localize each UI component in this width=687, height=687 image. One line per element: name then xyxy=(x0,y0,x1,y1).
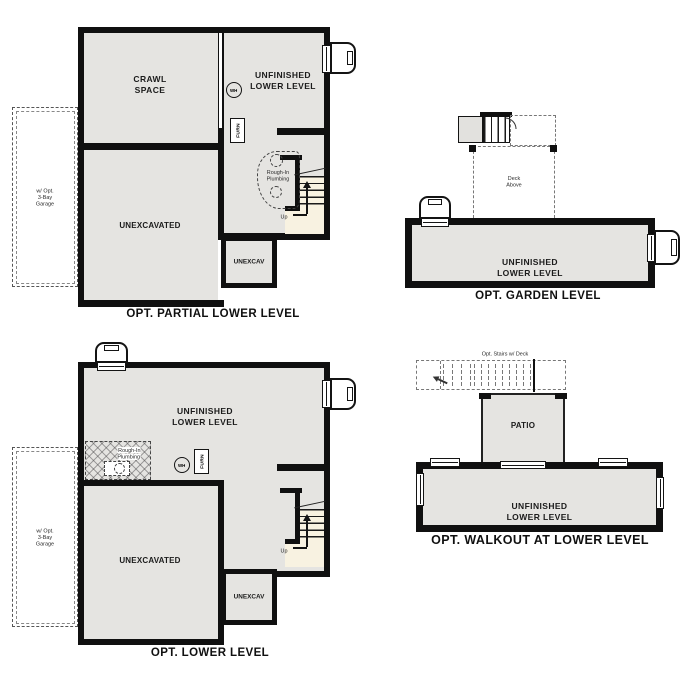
room-label-unexcav: UNEXCAV xyxy=(228,258,270,266)
wall-segment xyxy=(271,571,330,577)
arrow-head-icon xyxy=(303,514,311,521)
room-label-crawl-space: CRAWL SPACE xyxy=(100,74,200,96)
arrow-tail xyxy=(293,214,307,216)
unfinished-lower-level-room: UNFINISHED LOWER LEVEL xyxy=(405,218,655,288)
window xyxy=(416,473,424,506)
window xyxy=(598,458,628,467)
deck-above-label: Deck Above xyxy=(497,175,531,188)
stair-up-arrow xyxy=(301,514,313,549)
room-label-unfinished: UNFINISHED LOWER LEVEL xyxy=(238,70,328,92)
wall-segment xyxy=(78,27,330,33)
arrow-head-icon xyxy=(303,181,311,188)
garage-dashed-outline: w/ Opt. 3-Bay Garage xyxy=(12,447,78,627)
plumbing-fixture-circle xyxy=(270,186,282,198)
garage-note: w/ Opt. 3-Bay Garage xyxy=(25,187,66,207)
up-label: Up xyxy=(279,548,290,555)
room-label-unexcavated: UNEXCAVATED xyxy=(100,556,200,566)
deck-edge-line xyxy=(533,359,535,392)
window xyxy=(430,458,460,467)
wall-segment xyxy=(78,300,224,307)
wall-segment xyxy=(78,27,84,307)
arrow-tail xyxy=(293,547,307,549)
window-well xyxy=(654,230,680,265)
rough-in-label: Rough-In Plumbing xyxy=(112,447,146,460)
up-label: Up xyxy=(279,214,290,221)
room-label-unexcavated: UNEXCAVATED xyxy=(100,221,200,231)
arrow-line xyxy=(306,188,308,214)
wall-segment xyxy=(277,128,330,135)
deck-post xyxy=(550,145,557,152)
opt-stairs-deck-label: Opt. Stairs w/ Deck xyxy=(464,351,546,358)
plumbing-fixture-circle xyxy=(270,154,283,167)
garage-dashed-outline: w/ Opt. 3-Bay Garage xyxy=(12,107,78,287)
room-label-unfinished: UNFINISHED LOWER LEVEL xyxy=(160,406,250,428)
plan-title: OPT. LOWER LEVEL xyxy=(65,647,355,659)
arrow-line xyxy=(438,378,448,384)
rough-in-label: Rough-In Plumbing xyxy=(262,169,295,182)
window xyxy=(97,362,126,371)
wall-segment xyxy=(78,480,224,486)
room-label-patio: PATIO xyxy=(483,421,563,431)
room-label-unfinished: UNFINISHED LOWER LEVEL xyxy=(423,501,656,523)
plan-title: OPT. WALKOUT AT LOWER LEVEL xyxy=(416,533,664,547)
window-well xyxy=(419,196,451,219)
stair-up-arrow xyxy=(301,181,313,216)
window-well xyxy=(95,342,128,363)
deck-divider-line xyxy=(440,361,441,389)
window-well xyxy=(330,378,356,410)
patio-corner-block xyxy=(555,393,567,399)
plan-title: OPT. GARDEN LEVEL xyxy=(428,290,648,302)
patio-corner-block xyxy=(479,393,491,399)
floorplan-canvas: w/ Opt. 3-Bay Garage UNEXCAV Up xyxy=(0,0,687,687)
window xyxy=(421,218,449,227)
plumbing-fixture-circle xyxy=(114,463,125,474)
wall-segment xyxy=(78,362,84,645)
deck-post xyxy=(469,145,476,152)
room-label-unfinished: UNFINISHED LOWER LEVEL xyxy=(412,257,648,279)
wall-segment xyxy=(277,464,330,471)
stair-wall xyxy=(295,493,300,543)
furnace-icon: FURN xyxy=(194,449,209,474)
unfinished-lower-level-room: UNFINISHED LOWER LEVEL xyxy=(416,462,663,532)
wall-segment xyxy=(78,639,224,645)
water-heater-icon: WH xyxy=(174,457,190,473)
window-well xyxy=(330,42,356,74)
stair-wall xyxy=(285,539,300,544)
deck-stair-treads xyxy=(443,362,472,388)
deck-boards xyxy=(474,362,532,388)
arrow-line xyxy=(306,521,308,547)
plan-title: OPT. PARTIAL LOWER LEVEL xyxy=(68,308,358,320)
door-opening xyxy=(219,33,222,128)
furnace-icon: FURN xyxy=(230,118,245,143)
room-label-unexcav: UNEXCAV xyxy=(228,593,270,601)
window xyxy=(656,477,664,509)
sliding-door xyxy=(500,461,546,469)
wall-segment xyxy=(78,143,224,150)
deck-stair-dashed-extension xyxy=(510,115,556,146)
stair-landing xyxy=(458,116,483,143)
garage-note: w/ Opt. 3-Bay Garage xyxy=(25,527,66,547)
